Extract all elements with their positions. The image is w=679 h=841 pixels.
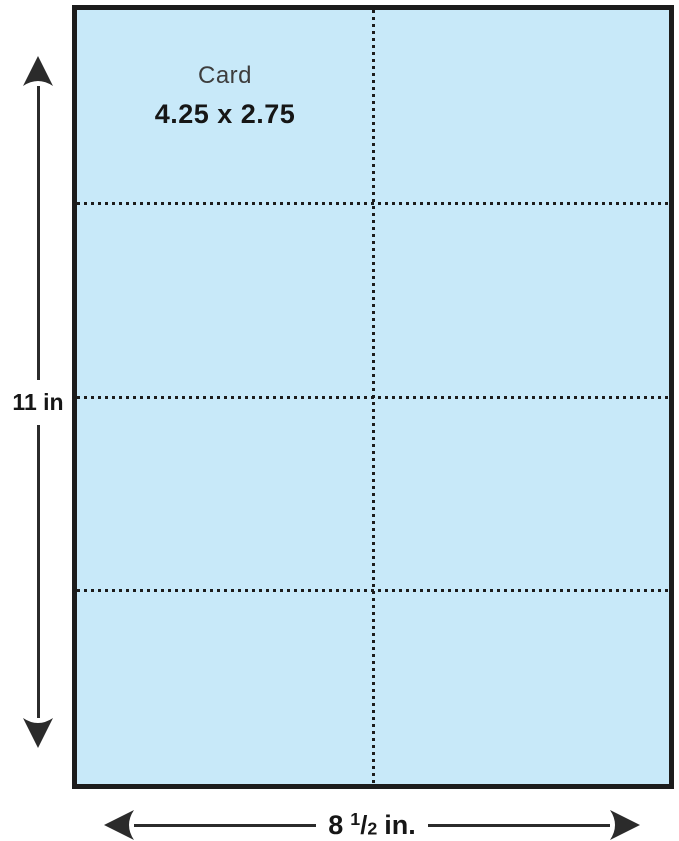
width-whole: 8 (328, 810, 343, 840)
arrowhead-up-icon (23, 56, 53, 86)
fraction-numerator: 1 (350, 809, 360, 829)
product-diagram: Card 4.25 x 2.75 11 in 81/2in. (0, 0, 679, 841)
card-label-block: Card 4.25 x 2.75 (77, 62, 373, 130)
width-unit: in. (384, 810, 416, 840)
height-label: 11 in (12, 380, 63, 425)
paper-sheet: Card 4.25 x 2.75 (72, 5, 674, 789)
perforation-horizontal-line-2 (77, 396, 669, 399)
width-dimension: 81/2in. (104, 806, 640, 841)
perforation-horizontal-line-3 (77, 589, 669, 592)
card-title: Card (77, 62, 373, 90)
width-arrow-line-left (134, 824, 316, 827)
card-size-label: 4.25 x 2.75 (77, 99, 373, 130)
height-arrow-line-bottom (37, 425, 40, 719)
arrowhead-left-icon (104, 810, 134, 840)
height-arrow-line-top (37, 86, 40, 380)
width-arrow-line-right (428, 824, 610, 827)
fraction-denominator: 2 (367, 818, 377, 838)
arrowhead-down-icon (23, 718, 53, 748)
height-dimension: 11 in (16, 56, 60, 748)
width-label: 81/2in. (316, 809, 428, 841)
perforation-horizontal-line-1 (77, 202, 669, 205)
arrowhead-right-icon (610, 810, 640, 840)
